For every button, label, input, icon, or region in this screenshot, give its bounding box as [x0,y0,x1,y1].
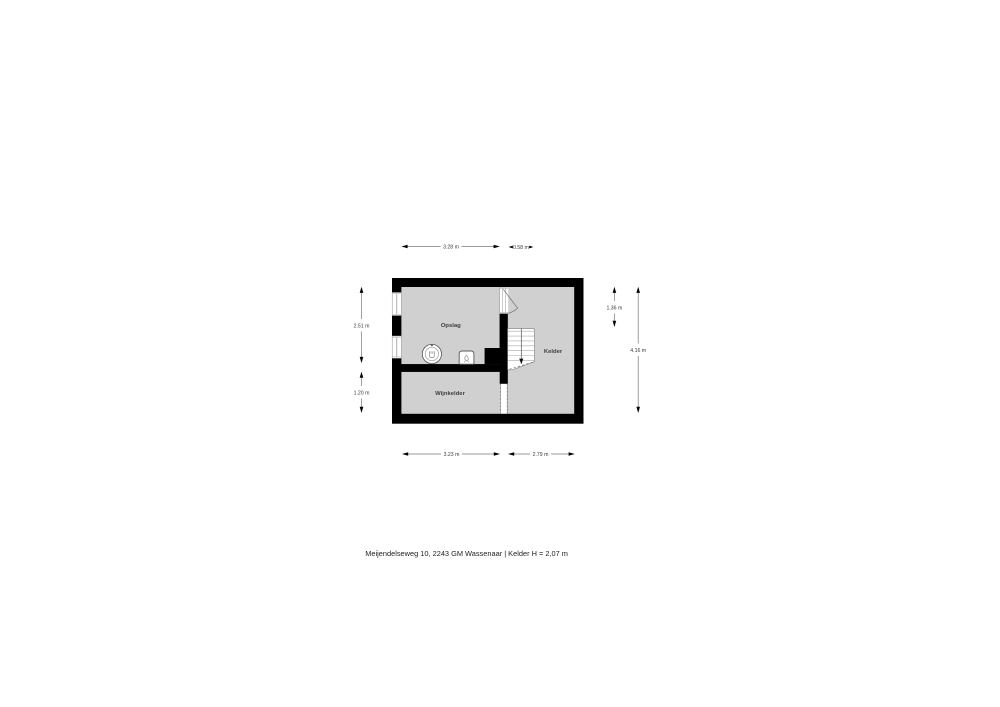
svg-text:3.28 m: 3.28 m [443,245,459,251]
svg-text:Meijendelseweg 10, 2243 GM Was: Meijendelseweg 10, 2243 GM Wassenaar | K… [365,549,568,558]
svg-text:3.23 m: 3.23 m [444,452,460,458]
svg-text:4.16 m: 4.16 m [630,348,646,354]
svg-text:Opslag: Opslag [441,323,461,329]
svg-text:2.51 m: 2.51 m [354,323,370,329]
svg-text:1.20 m: 1.20 m [354,390,370,396]
svg-text:1.36 m: 1.36 m [606,305,622,311]
svg-text:0.58 m: 0.58 m [513,245,529,251]
svg-text:Kelder: Kelder [544,349,563,355]
svg-text:Wijnkelder: Wijnkelder [435,391,465,397]
svg-text:2.79 m: 2.79 m [533,452,549,458]
